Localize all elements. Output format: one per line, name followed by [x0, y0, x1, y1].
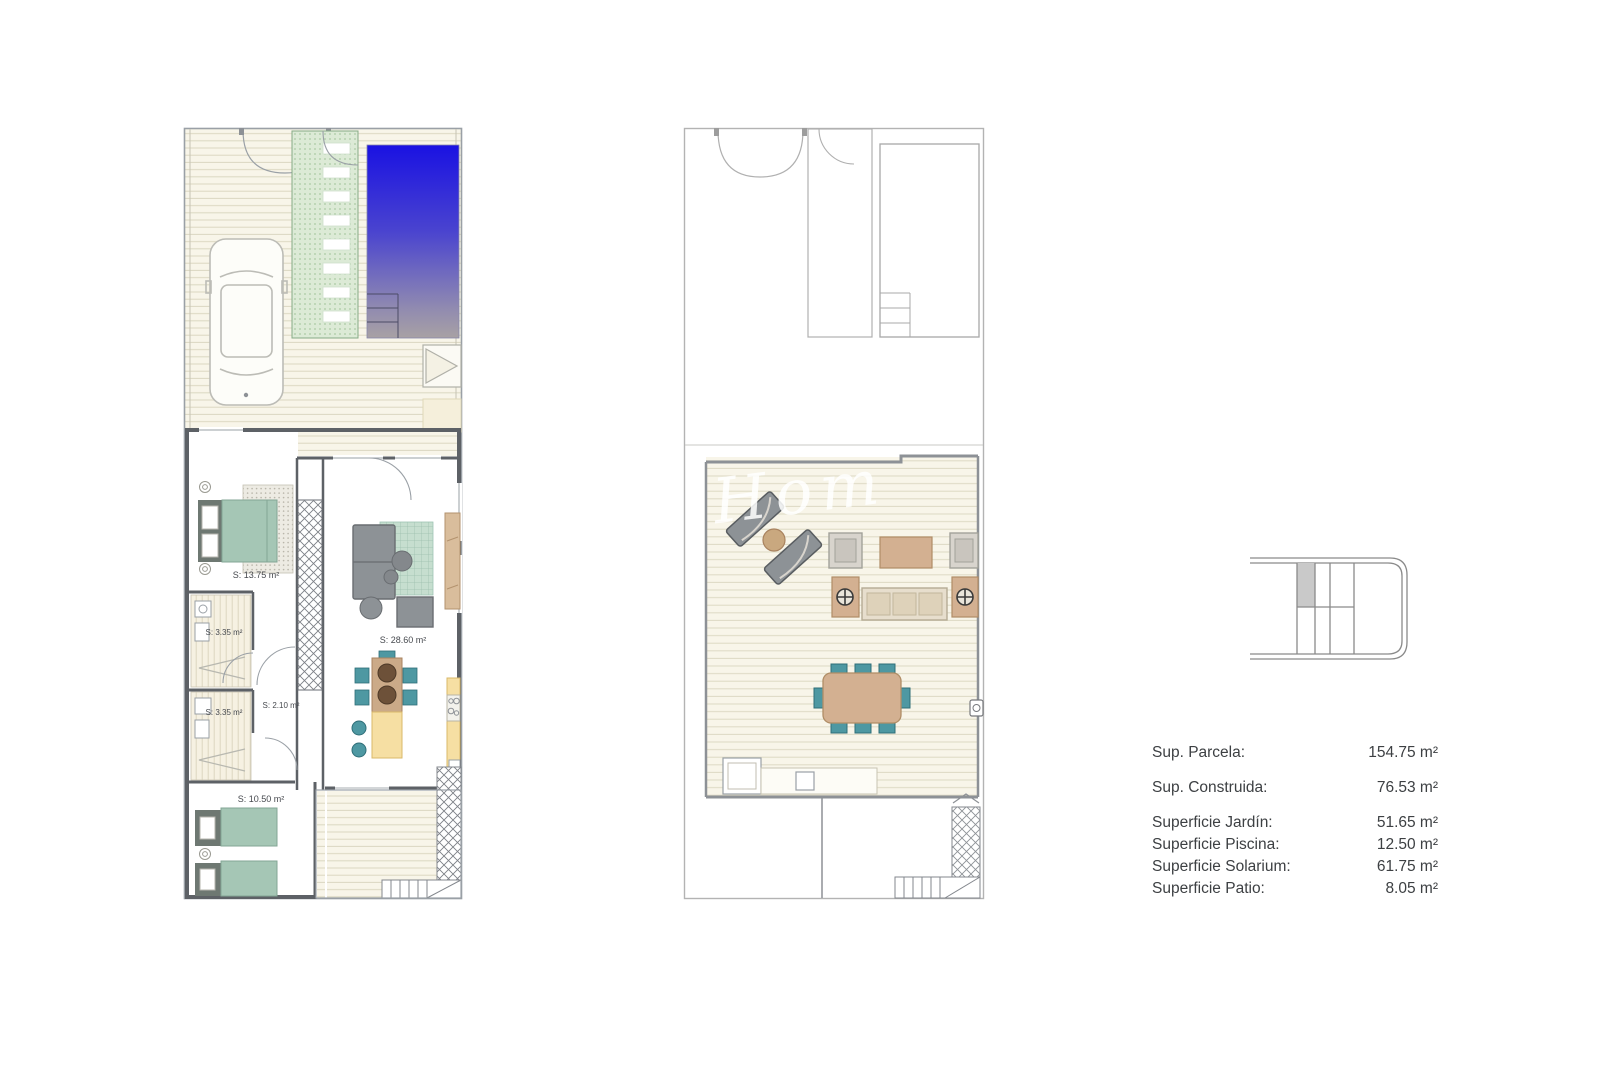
summary-row-jardin: Superficie Jardín: 51.65 m² [1152, 812, 1438, 834]
lounge-chair [397, 597, 433, 627]
outdoor-shower [423, 345, 461, 387]
hallway: S: 2.10 m² [257, 647, 300, 770]
bathroom-1: S: 3.35 m² [191, 595, 253, 687]
parasol-table-1 [832, 577, 859, 617]
summary-label: Superficie Solarium: [1152, 856, 1291, 878]
sofa [353, 525, 395, 599]
living-kitchen: S: 28.60 m² [352, 458, 460, 788]
room-label: S: 3.35 m² [206, 708, 243, 717]
porch-deck [298, 432, 459, 456]
coffee-ottoman [880, 537, 932, 568]
door-arc [369, 458, 411, 500]
rear-patio [316, 767, 461, 898]
double-bed [198, 500, 277, 562]
outdoor-armchair-2 [950, 533, 978, 568]
summary-label: Superficie Jardín: [1152, 812, 1273, 834]
summary-value: 61.75 m² [1377, 856, 1438, 878]
car [206, 239, 287, 405]
single-bed-2 [195, 861, 277, 896]
summary-row-solarium: Superficie Solarium: 61.75 m² [1152, 856, 1438, 878]
swimming-pool [367, 145, 459, 338]
garden-path [292, 131, 358, 338]
summary-label: Superficie Patio: [1152, 878, 1265, 900]
solarium-staircase [895, 794, 980, 898]
patio-lower-steps [382, 880, 461, 898]
room-label: S: 3.35 m² [206, 628, 243, 637]
door-arc [257, 647, 295, 685]
ceiling-spotlight [200, 849, 211, 860]
summary-value: 12.50 m² [1377, 834, 1438, 856]
stair-section-detail [1212, 550, 1422, 670]
room-label: S: 2.10 m² [263, 701, 300, 710]
outdoor-dining-set [814, 664, 910, 733]
bedroom-2: S: 10.50 m² [195, 794, 284, 896]
tv-sideboard [445, 513, 460, 609]
side-table [392, 551, 412, 571]
door-arc [265, 738, 297, 770]
patio-staircase [437, 767, 461, 880]
parasol-table-2 [952, 577, 978, 617]
garden-pad [423, 399, 461, 432]
summary-value: 76.53 m² [1377, 777, 1438, 799]
solarium-plan [683, 127, 985, 900]
summary-row-parcela: Sup. Parcela: 154.75 m² [1152, 742, 1438, 764]
floor-plan-sheet: S: 13.75 m² S: 3.35 m² S: 2.10 m² [0, 0, 1620, 1080]
area-summary: Sup. Parcela: 154.75 m² Sup. Construida:… [1152, 742, 1438, 900]
bedroom-1: S: 13.75 m² [198, 482, 293, 581]
outdoor-sofa [862, 588, 947, 620]
room-label: S: 10.50 m² [238, 794, 285, 804]
single-bed-1 [195, 808, 277, 846]
outdoor-armchair-1 [829, 533, 862, 568]
summary-value: 154.75 m² [1368, 742, 1438, 764]
upper-outline-double-door [714, 128, 807, 177]
summary-label: Superficie Piscina: [1152, 834, 1280, 856]
summary-value: 8.05 m² [1385, 878, 1438, 900]
upper-outline-path [808, 129, 872, 337]
summary-value: 51.65 m² [1377, 812, 1438, 834]
room-label: S: 28.60 m² [380, 635, 427, 645]
side-table-small [384, 570, 398, 584]
staircase-to-solarium [298, 500, 322, 690]
solarium-deck [706, 457, 978, 797]
wall-fixture [970, 700, 983, 716]
pouf [360, 597, 382, 619]
summary-row-piscina: Superficie Piscina: 12.50 m² [1152, 834, 1438, 856]
room-label: S: 13.75 m² [233, 570, 280, 580]
upper-outline-pool [880, 144, 979, 337]
kitchen-island [352, 712, 402, 758]
dining-table [355, 651, 417, 712]
lounger-side-table [763, 529, 785, 551]
bathroom-2: S: 3.35 m² [191, 692, 251, 780]
summary-row-construida: Sup. Construida: 76.53 m² [1152, 777, 1438, 799]
summary-label: Sup. Construida: [1152, 777, 1267, 799]
summary-label: Sup. Parcela: [1152, 742, 1245, 764]
summary-row-patio: Superficie Patio: 8.05 m² [1152, 878, 1438, 900]
ground-floor-plan: S: 13.75 m² S: 3.35 m² S: 2.10 m² [183, 127, 463, 900]
